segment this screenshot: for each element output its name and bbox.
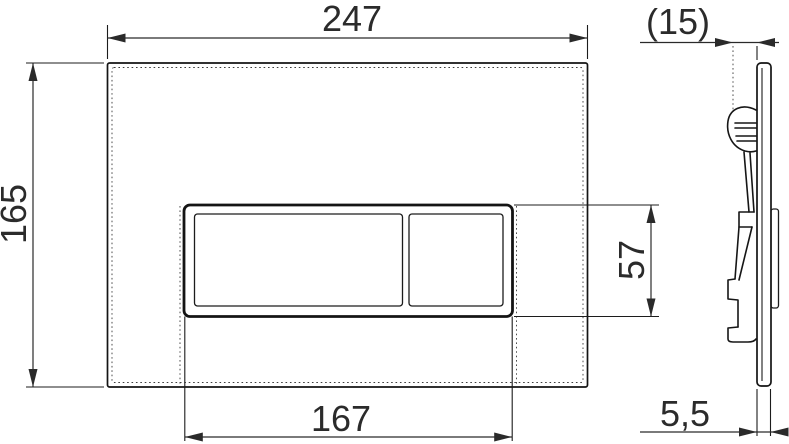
dim-thickness: 5,5	[640, 389, 789, 437]
arrowhead-top	[647, 205, 656, 223]
arrowhead-right	[757, 38, 775, 47]
dim-label-overall-width: 247	[322, 0, 382, 39]
dim-label-buttons-width: 167	[311, 398, 371, 439]
arrowhead-right	[771, 428, 789, 437]
dim-depth: (15)	[640, 1, 779, 110]
button-frame	[184, 205, 513, 317]
dim-label-overall-height: 165	[0, 184, 34, 244]
side-plate-profile	[757, 63, 771, 386]
arrowhead-left	[715, 38, 733, 47]
mounting-clip-wedge	[735, 227, 752, 280]
dim-overall-height: 165	[0, 63, 104, 387]
mounting-clip-hook	[739, 212, 754, 227]
mounting-clip-slots	[735, 123, 756, 141]
mounting-clip-spring	[728, 107, 756, 152]
dim-buttons-height: 57	[514, 205, 659, 317]
mounting-clip-step	[728, 279, 738, 327]
arrowhead-left	[739, 428, 757, 437]
dim-overall-width: 247	[108, 0, 588, 59]
technical-drawing-canvas: 247 165 167 57	[0, 0, 789, 444]
arrowhead-bottom	[647, 299, 656, 317]
arrowhead-right	[570, 34, 588, 43]
arrowhead-bottom	[29, 369, 38, 387]
dim-label-depth: (15)	[646, 1, 710, 42]
plate-outline	[108, 63, 588, 387]
button-small	[409, 214, 503, 306]
dim-buttons-width: 167	[185, 398, 512, 442]
extension-lines	[26, 63, 104, 387]
arrowhead-left	[185, 433, 203, 442]
dim-label-thickness: 5,5	[660, 393, 710, 434]
band-edge-dotted	[180, 206, 517, 386]
drawing-page: 247 165 167 57	[0, 0, 789, 444]
front-view	[108, 63, 588, 441]
mounting-clip-arm	[744, 152, 754, 212]
side-view	[728, 63, 779, 386]
arrowhead-top	[29, 63, 38, 81]
side-button-profile	[771, 209, 779, 308]
mounting-clip-foot	[728, 327, 756, 342]
arrowhead-right	[494, 433, 512, 442]
button-large	[195, 214, 403, 306]
extension-lines	[757, 389, 771, 436]
arrowhead-left	[108, 34, 126, 43]
dim-label-buttons-height: 57	[611, 240, 652, 280]
